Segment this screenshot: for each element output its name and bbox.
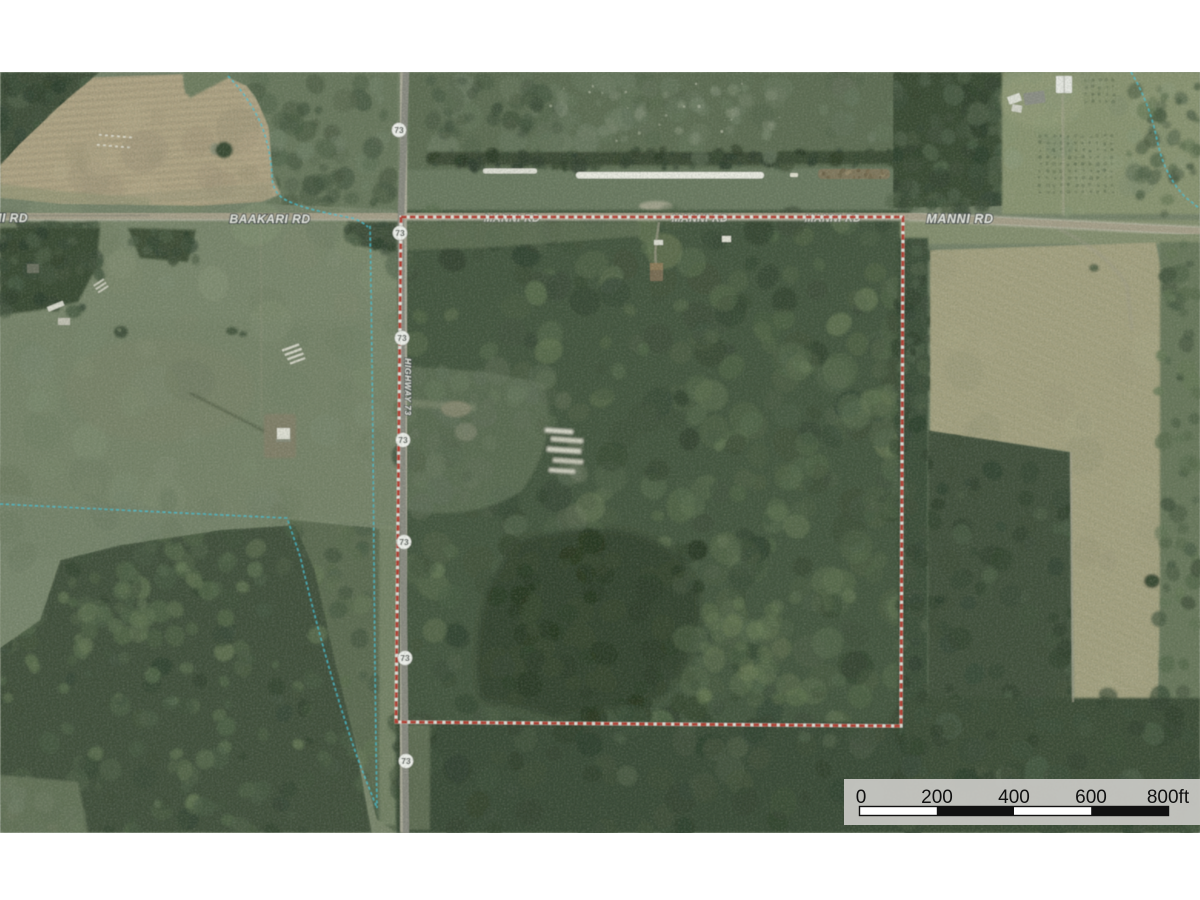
svg-text:0: 0 bbox=[856, 787, 867, 808]
svg-text:600: 600 bbox=[1075, 787, 1107, 808]
svg-text:800ft: 800ft bbox=[1147, 787, 1190, 808]
svg-text:200: 200 bbox=[921, 787, 953, 808]
svg-text:400: 400 bbox=[998, 787, 1030, 808]
